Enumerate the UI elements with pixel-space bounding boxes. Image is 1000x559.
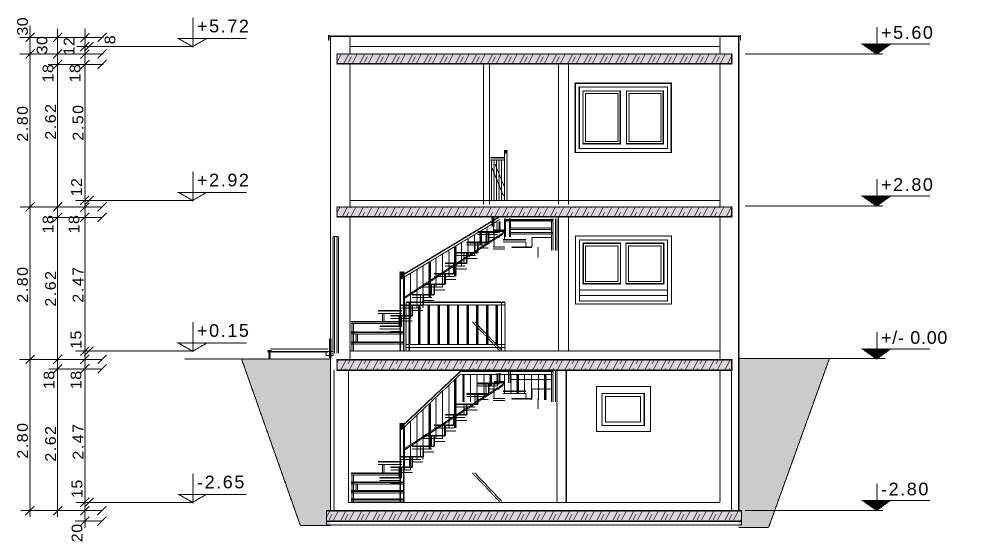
svg-text:2.62: 2.62 [43,102,60,139]
svg-text:18: 18 [69,370,86,389]
svg-text:30: 30 [35,36,52,55]
svg-text:-2.80: -2.80 [881,480,930,500]
svg-text:2.80: 2.80 [15,265,32,302]
svg-text:2.50: 2.50 [71,103,88,140]
svg-text:2.80: 2.80 [15,104,32,141]
svg-text:8: 8 [103,35,120,44]
svg-text:15: 15 [69,330,86,349]
svg-text:+0.15: +0.15 [197,321,251,341]
svg-text:+2.80: +2.80 [881,175,935,195]
svg-text:18: 18 [68,64,85,83]
svg-text:2.62: 2.62 [43,424,60,461]
svg-text:18: 18 [41,370,58,389]
svg-text:12: 12 [69,178,86,197]
svg-text:+2.92: +2.92 [197,170,251,190]
svg-text:20: 20 [69,523,86,542]
svg-text:18: 18 [41,215,58,234]
svg-text:2.62: 2.62 [43,269,60,306]
svg-text:+5.60: +5.60 [881,23,935,43]
svg-text:-2.65: -2.65 [197,472,246,492]
svg-text:18: 18 [41,64,58,83]
svg-text:2.47: 2.47 [71,422,88,459]
svg-text:2.47: 2.47 [71,265,88,302]
svg-text:2.80: 2.80 [15,421,32,458]
svg-text:18: 18 [67,215,84,234]
svg-text:+5.72: +5.72 [197,17,251,37]
svg-text:+/- 0.00: +/- 0.00 [881,328,948,348]
svg-text:30: 30 [15,17,32,36]
svg-text:12: 12 [62,37,79,56]
svg-text:15: 15 [69,479,86,498]
